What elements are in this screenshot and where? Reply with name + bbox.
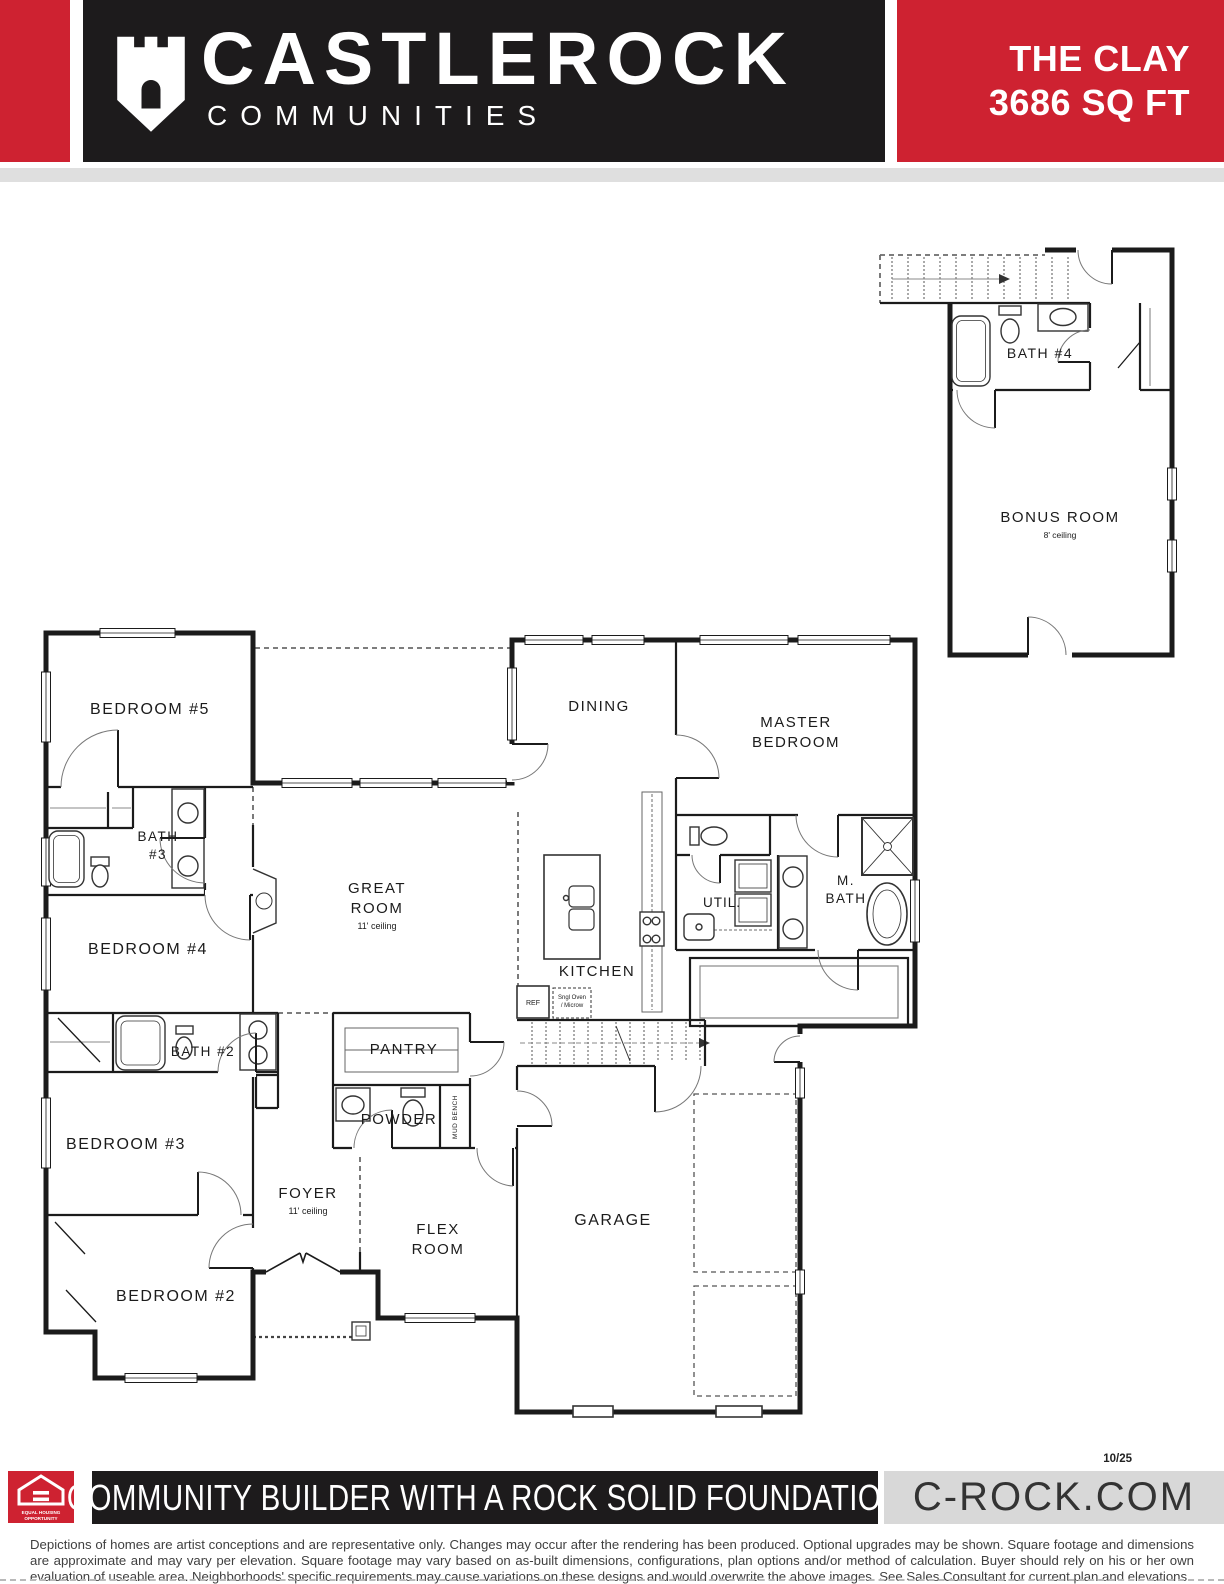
header-logo: CASTLEROCK COMMUNITIES — [83, 0, 885, 162]
room-label-great-2: ROOM — [351, 900, 404, 917]
room-label-bedroom5: BEDROOM #5 — [90, 701, 210, 718]
room-label-bath4: BATH #4 — [1007, 345, 1073, 361]
interior-walls — [46, 303, 1172, 1318]
room-label-great-1: GREAT — [348, 880, 406, 897]
room-label-bath3-2: #3 — [149, 847, 167, 862]
room-label-mbath-2: BATH — [825, 891, 866, 906]
room-label-pantry: PANTRY — [370, 1041, 438, 1058]
room-label-bedroom4: BEDROOM #4 — [88, 941, 208, 958]
room-label-bedroom3: BEDROOM #3 — [66, 1136, 186, 1153]
date-code: 10/25 — [1103, 1453, 1132, 1465]
plan-title-block: THE CLAY 3686 SQ FT — [897, 0, 1224, 162]
room-label-mbath-1: M. — [837, 873, 855, 888]
brand-sub: COMMUNITIES — [207, 100, 549, 132]
room-label-dining: DINING — [568, 698, 630, 715]
room-label-powder: POWDER — [361, 1111, 438, 1128]
footer-tagline-bar: COMMUNITY BUILDER WITH A ROCK SOLID FOUN… — [92, 1471, 878, 1524]
floor-plan: BEDROOM #5 BATH #3 BEDROOM #4 BATH #2 BE… — [0, 0, 1224, 1584]
room-label-garage: GARAGE — [574, 1212, 651, 1229]
room-label-bonus: BONUS ROOM — [1000, 509, 1119, 526]
footer-tagline: COMMUNITY BUILDER WITH A ROCK SOLID FOUN… — [67, 1477, 903, 1519]
room-label-master-1: MASTER — [760, 714, 832, 731]
fixtures — [49, 304, 1150, 1417]
room-label-bath3-1: BATH — [137, 829, 178, 844]
room-label-bedroom2: BEDROOM #2 — [116, 1288, 236, 1305]
disclaimer-text: Depictions of homes are artist conceptio… — [30, 1537, 1194, 1584]
brand-name: CASTLEROCK — [201, 16, 795, 101]
stairs-bonus — [892, 257, 1068, 301]
header-divider — [0, 168, 1224, 182]
equal-housing-logo: EQUAL HOUSING OPPORTUNITY — [8, 1471, 74, 1523]
footer-website-bar: C-ROCK.COM — [884, 1471, 1224, 1524]
fixture-label-oven-1: Sngl Oven — [558, 995, 586, 1001]
flyer-page: BEDROOM #5 BATH #3 BEDROOM #4 BATH #2 BE… — [0, 0, 1224, 1584]
room-label-bath2: BATH #2 — [171, 1044, 235, 1059]
room-label-mud-bench: MUD BENCH — [452, 1095, 459, 1139]
stairs-main — [520, 1022, 710, 1064]
fixture-label-oven-2: / Microw — [561, 1003, 584, 1009]
room-label-bonus-sub: 8' ceiling — [1044, 530, 1077, 540]
windows — [42, 468, 1177, 1383]
fixture-label-ref: REF — [526, 1000, 540, 1007]
eho-text-1: EQUAL HOUSING — [22, 1510, 61, 1515]
room-labels: BEDROOM #5 BATH #3 BEDROOM #4 BATH #2 BE… — [66, 345, 1120, 1305]
header-red-block — [0, 0, 70, 162]
door-gaps — [61, 245, 1112, 1278]
room-label-kitchen: KITCHEN — [559, 963, 635, 980]
plan-name: THE CLAY — [1009, 37, 1190, 81]
castle-icon — [113, 24, 189, 136]
eho-text-2: OPPORTUNITY — [24, 1516, 57, 1521]
room-label-master-2: BEDROOM — [752, 734, 840, 751]
plan-sqft: 3686 SQ FT — [989, 81, 1190, 125]
room-label-util: UTIL. — [703, 895, 741, 910]
room-label-flex-2: ROOM — [412, 1241, 465, 1258]
room-label-great-sub: 11' ceiling — [357, 921, 396, 931]
room-label-foyer: FOYER — [278, 1185, 337, 1202]
footer-website: C-ROCK.COM — [913, 1475, 1195, 1520]
bottom-divider — [0, 1579, 1224, 1581]
room-label-foyer-sub: 11' ceiling — [288, 1206, 327, 1216]
exterior-walls — [46, 250, 1172, 1412]
room-label-flex-1: FLEX — [416, 1221, 460, 1238]
